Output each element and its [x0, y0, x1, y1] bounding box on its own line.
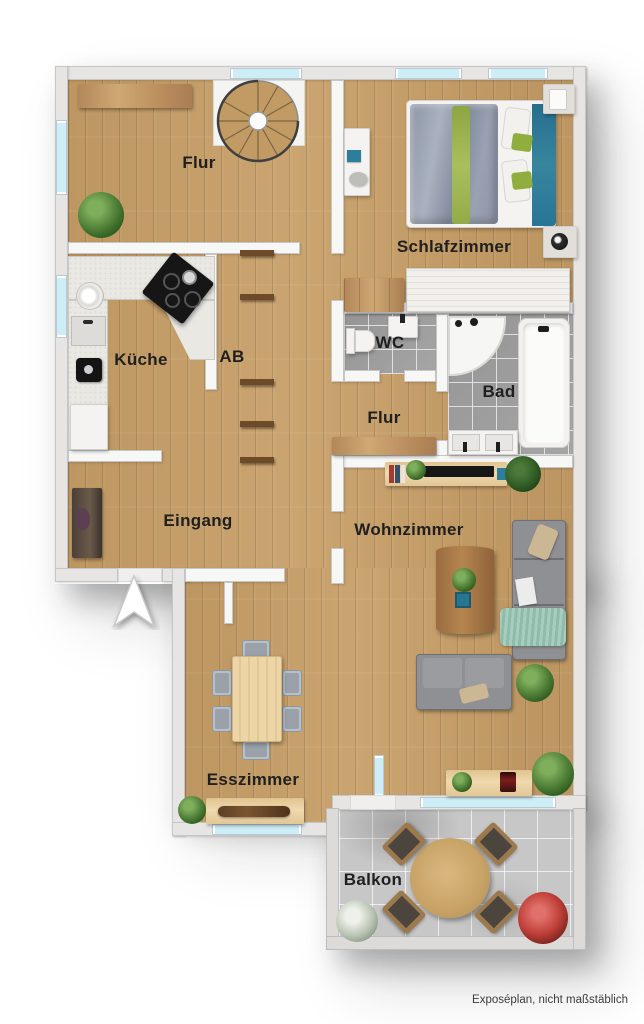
- bathtub-basin: [523, 323, 565, 443]
- room-label-esszimmer: Esszimmer: [207, 770, 299, 790]
- cooktop-burner: [163, 273, 180, 290]
- wall: [344, 370, 380, 382]
- wall: [224, 582, 233, 624]
- wall: [573, 66, 586, 810]
- wardrobe: [406, 268, 570, 312]
- table-lamp: [551, 233, 568, 250]
- room-label-ab: AB: [219, 347, 244, 367]
- wall: [68, 450, 162, 462]
- vanity-tap: [463, 442, 467, 452]
- dining-table: [232, 656, 282, 742]
- room-label-flur: Flur: [182, 153, 215, 173]
- balcony-door-leaf: [374, 755, 384, 797]
- plant: [406, 460, 426, 480]
- bathtub-tap: [538, 326, 549, 332]
- room-label-bad: Bad: [482, 382, 515, 402]
- vanity-tap: [496, 442, 500, 452]
- wall: [331, 300, 344, 382]
- sideboard: [78, 84, 192, 108]
- room-label-flur-mitte: Flur: [367, 408, 400, 428]
- books: [395, 465, 400, 483]
- desk-accessory: [347, 150, 361, 162]
- toilet: [346, 328, 355, 354]
- books: [389, 465, 394, 483]
- plant: [532, 752, 574, 796]
- hall-bench: [332, 437, 436, 455]
- bed-accent-pillow: [511, 171, 533, 190]
- window: [395, 68, 462, 79]
- wall: [331, 80, 344, 254]
- dining-chair: [282, 670, 302, 696]
- tv: [424, 466, 494, 477]
- decor-tray: [455, 592, 471, 608]
- plant: [516, 664, 554, 702]
- fridge: [70, 404, 108, 450]
- dining-chair: [212, 706, 232, 732]
- books: [401, 465, 405, 483]
- plant: [452, 568, 476, 592]
- espresso-machine: [500, 772, 516, 792]
- balcony-wall: [573, 808, 586, 950]
- plant: [178, 796, 206, 824]
- notebook: [549, 89, 567, 110]
- room-label-wc: WC: [376, 333, 405, 353]
- cooktop-burner: [182, 270, 197, 285]
- room-label-kueche: Küche: [114, 350, 167, 370]
- shelf-board: [240, 294, 274, 300]
- shelf-board: [240, 250, 274, 256]
- desk-chair: [349, 172, 367, 186]
- plant: [452, 772, 472, 792]
- bed-teal-runner: [532, 104, 556, 226]
- disclaimer-text: Exposéplan, nicht maßstäblich: [472, 994, 628, 1006]
- wall: [172, 568, 185, 836]
- loveseat-cushion: [423, 658, 462, 688]
- shelf-board: [240, 379, 274, 385]
- cooktop-burner: [165, 293, 180, 308]
- bed-green-throw: [452, 106, 470, 224]
- room-label-balkon: Balkon: [344, 870, 402, 890]
- window: [212, 824, 302, 835]
- window: [488, 68, 548, 79]
- window: [56, 120, 67, 195]
- coffee-machine-dial: [84, 365, 93, 374]
- balcony-door-threshold: [350, 795, 396, 810]
- sink-faucet: [83, 320, 93, 324]
- window: [56, 275, 67, 338]
- decor-tray: [218, 806, 290, 817]
- shower-head: [470, 318, 478, 326]
- wc-sink-tap: [400, 314, 405, 323]
- wall: [436, 314, 448, 392]
- balcony-table: [410, 838, 490, 918]
- wall: [185, 568, 285, 582]
- plant: [78, 192, 124, 238]
- dining-chair: [282, 706, 302, 732]
- floorplan-page: Flur Schlafzimmer Küche AB WC Bad Flur E…: [0, 0, 644, 1024]
- wall: [331, 455, 344, 512]
- bed-accent-pillow: [511, 133, 533, 153]
- shelf-board: [240, 421, 274, 427]
- shower-tap: [455, 320, 462, 327]
- sofa-seat-line: [514, 558, 564, 560]
- wall: [404, 370, 436, 382]
- toilet-bowl: [355, 330, 375, 352]
- dresser: [344, 278, 404, 312]
- dish-rack: [76, 282, 104, 310]
- window: [420, 797, 556, 808]
- shelf-board: [240, 457, 274, 463]
- room-label-eingang: Eingang: [163, 511, 232, 531]
- room-label-wohnzimmer: Wohnzimmer: [354, 520, 463, 540]
- spiral-staircase: [213, 76, 307, 170]
- plant: [505, 456, 541, 492]
- cooktop-burner: [184, 291, 201, 308]
- entrance-arrow-icon: [108, 574, 160, 630]
- plant: [518, 892, 568, 944]
- umbrella: [76, 508, 90, 530]
- dining-chair: [242, 740, 270, 760]
- dining-chair: [212, 670, 232, 696]
- plant: [336, 900, 378, 942]
- sofa-throw: [500, 608, 566, 646]
- room-label-schlafzimmer: Schlafzimmer: [397, 237, 511, 257]
- wall: [331, 548, 344, 584]
